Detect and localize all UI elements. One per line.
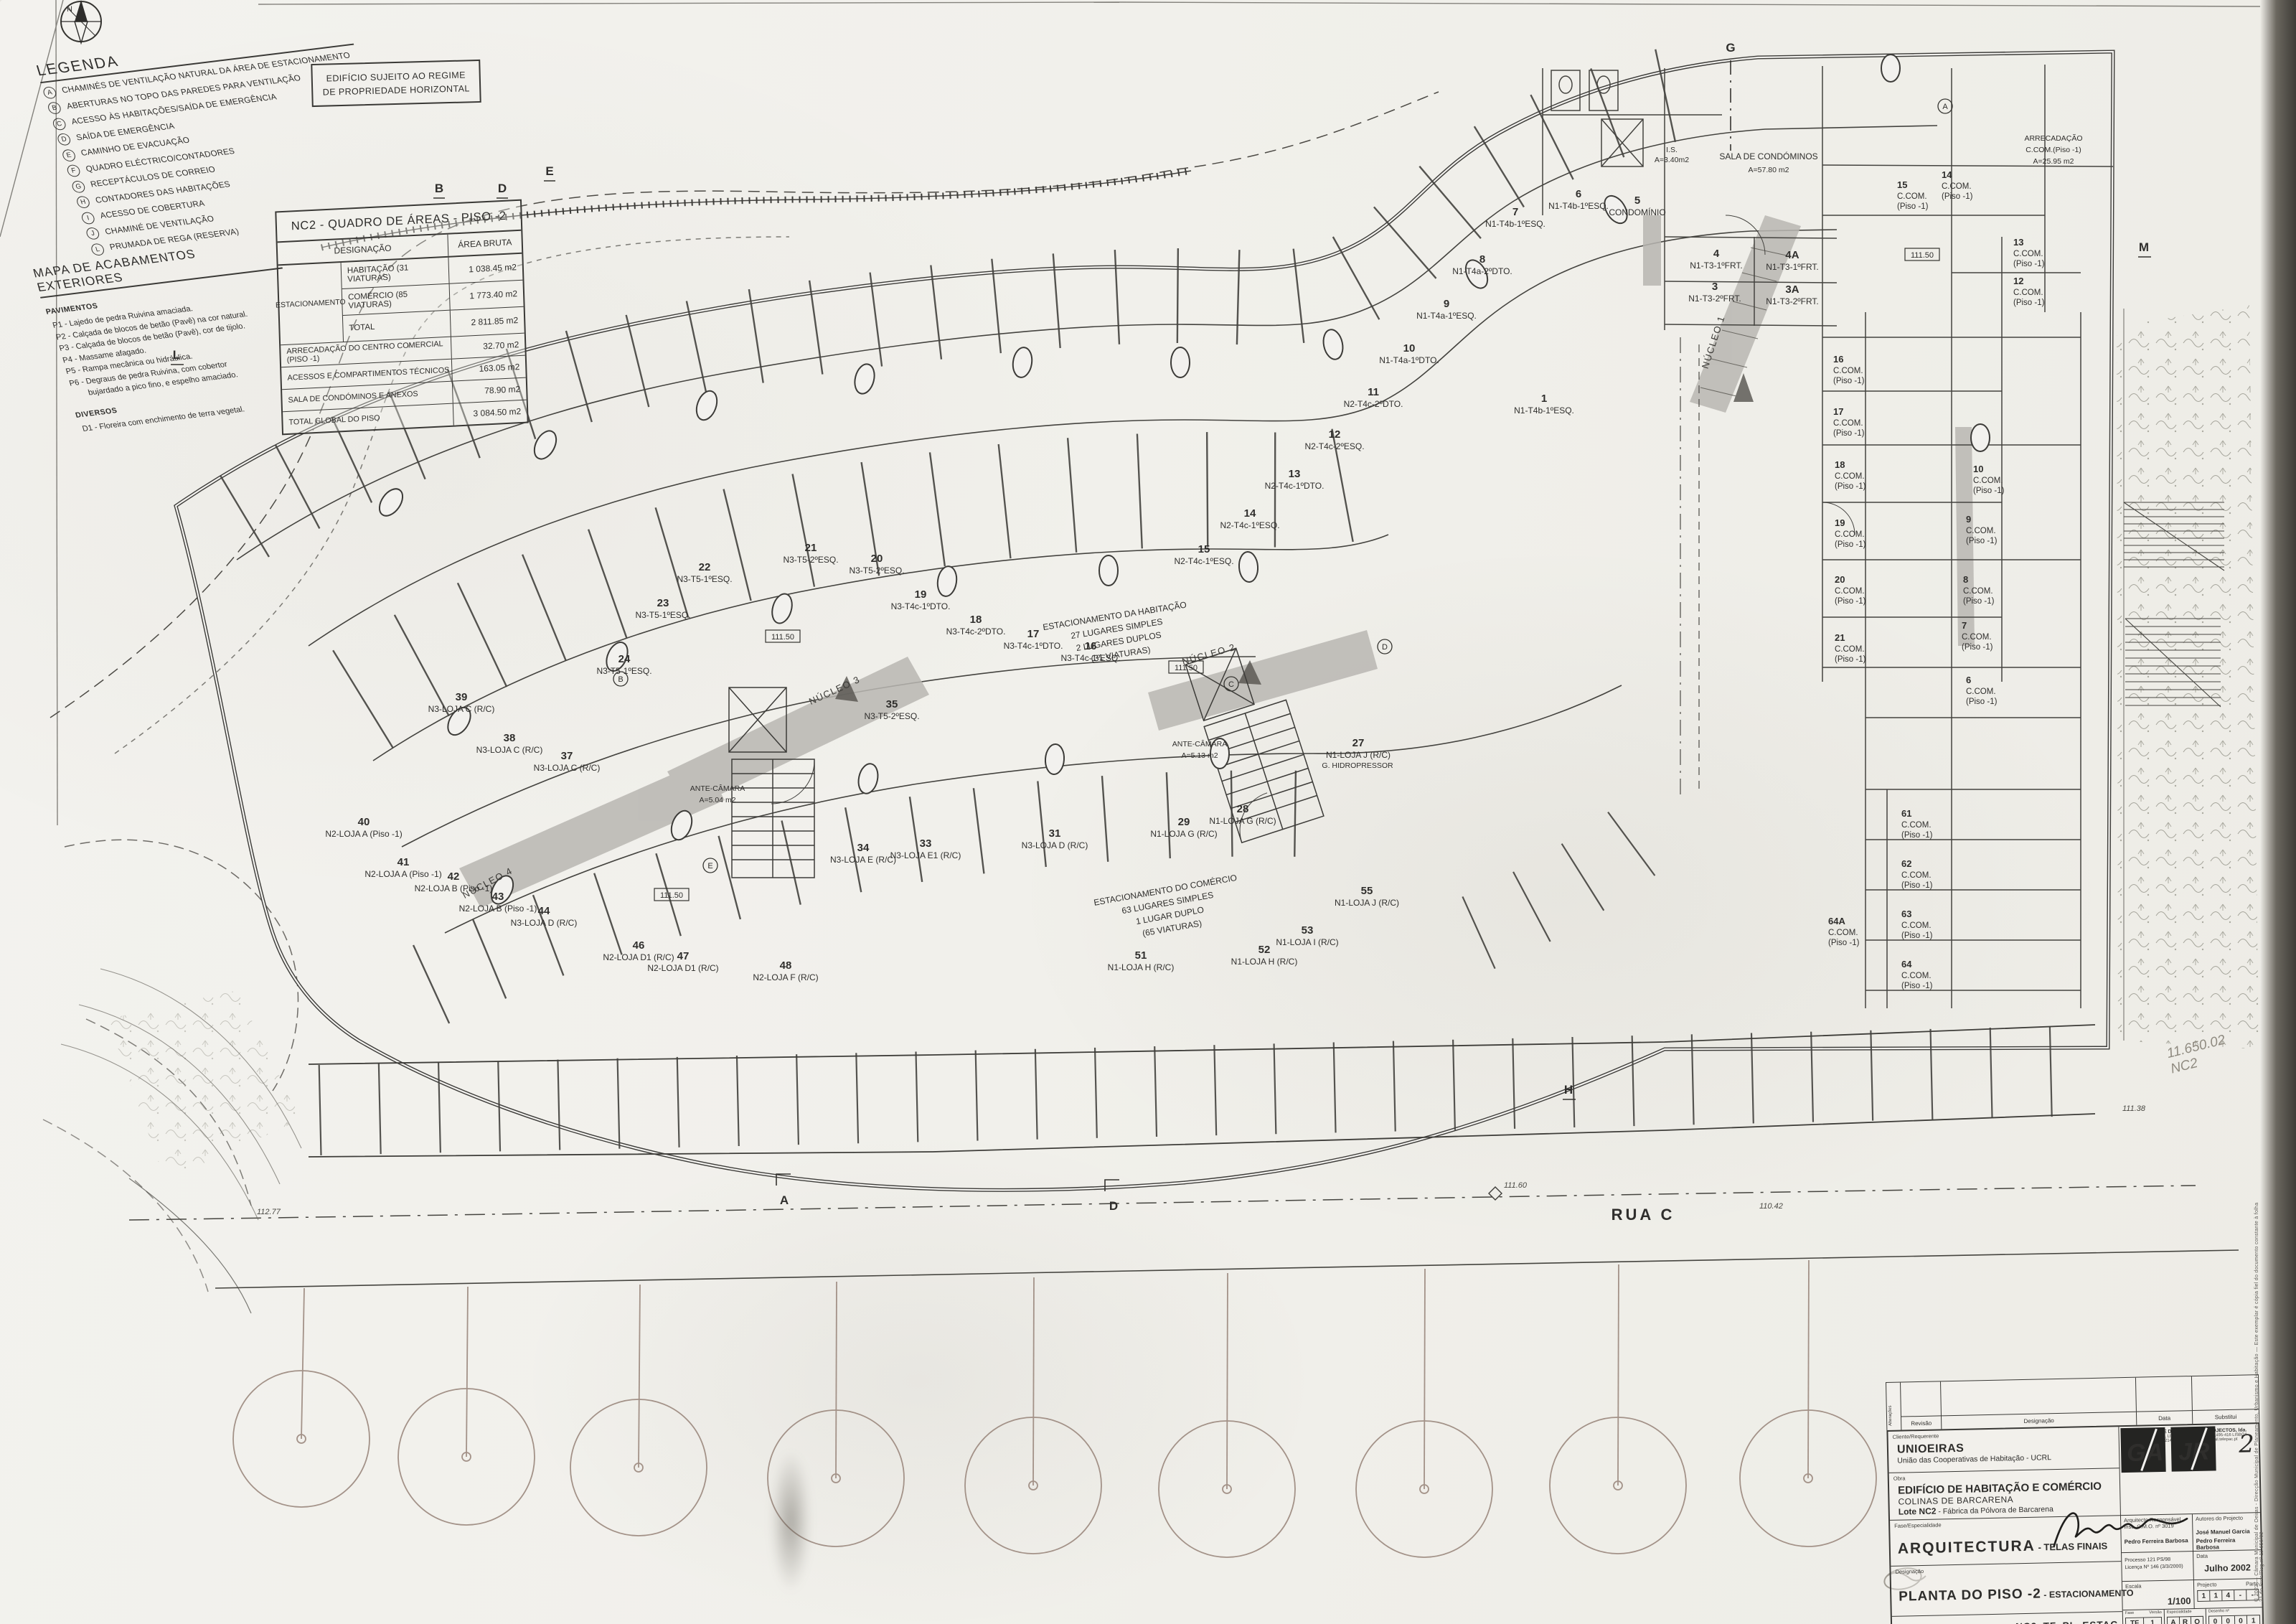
room-type: C.COM. bbox=[1966, 687, 1996, 696]
stall-label: N1-T4b-1ºESQ. bbox=[1485, 219, 1545, 229]
axis-letter-d: D bbox=[498, 182, 507, 195]
stall-label: N1-LOJA H (R/C) bbox=[1231, 957, 1298, 967]
room-floor: (Piso -1) bbox=[1833, 429, 1865, 438]
scale-project-cell: Escala 1/100 Projecto Parte 1 1 4 - bbox=[2122, 1579, 2262, 1610]
room-number: 7 bbox=[1962, 620, 1967, 631]
author-name: Pedro Ferreira Barbosa bbox=[2196, 1536, 2258, 1551]
stall-label: N1-T3-1ºFRT. bbox=[1766, 262, 1819, 272]
esp-cell: R bbox=[2180, 1617, 2192, 1624]
room-type: C.COM. bbox=[1835, 472, 1865, 481]
des-cell: 0 bbox=[2234, 1616, 2247, 1624]
stall-label: N2-T4c-2ºDTO. bbox=[1344, 399, 1403, 409]
revision-col-designacao: Designação bbox=[1941, 1378, 2137, 1430]
stall-label: N1-T4b-1ºESQ. bbox=[1514, 405, 1574, 416]
level-value: 111.50 bbox=[771, 633, 794, 642]
scan-smudge bbox=[762, 1417, 819, 1624]
room-number: 8 bbox=[1963, 574, 1968, 585]
sheet-number-handwritten: 2 bbox=[2239, 1430, 2254, 1458]
group-row-value: 2 811.85 m2 bbox=[451, 307, 524, 337]
stall-number: 24 bbox=[618, 653, 631, 665]
stall-label: CONDOMÍNIO bbox=[1609, 207, 1665, 217]
room-number: 64A bbox=[1828, 916, 1845, 926]
road-level-value: 111.60 bbox=[1504, 1181, 1528, 1190]
room-type: C.COM. bbox=[1901, 921, 1932, 930]
right-block-dashed-lines bbox=[1680, 337, 1699, 797]
axis-letter-h: H bbox=[1564, 1083, 1573, 1097]
stall-label: N3-LOJA D (R/C) bbox=[1022, 840, 1088, 850]
revision-header: Substitui bbox=[2193, 1409, 2259, 1424]
desenho-label: Desenho nº bbox=[2208, 1608, 2260, 1614]
stall-number: 55 bbox=[1361, 885, 1373, 897]
desenho-col: Desenho nº 0001 bbox=[2206, 1607, 2263, 1624]
stall-label: N1-LOJA J (R/C) bbox=[1326, 750, 1391, 760]
room-number: 6 bbox=[1966, 675, 1971, 685]
circled-letter: A bbox=[1942, 103, 1948, 111]
zone-label-comercio: ESTACIONAMENTO DO COMÉRCIO 63 LUGARES SI… bbox=[1093, 872, 1244, 946]
room-number: 64 bbox=[1901, 959, 1912, 970]
especialidade-label: Especialidade bbox=[2167, 1610, 2203, 1615]
date-label: Data bbox=[2196, 1552, 2258, 1559]
stall-label: N3-LOJA E (R/C) bbox=[830, 855, 896, 865]
revision-table: Alterações Revisão Designação Data Subst… bbox=[1886, 1374, 2259, 1430]
title-block-left: Cliente/Requerente UNIOEIRAS União das C… bbox=[1888, 1427, 2123, 1624]
stall-label: N1-T3-2ºFRT. bbox=[1688, 294, 1741, 304]
stall-number: 47 bbox=[677, 950, 690, 962]
room-type: C.COM. bbox=[1901, 821, 1932, 830]
process-date-cell: Processo 121 PS/98 Licença Nº 146 (3/3/2… bbox=[2122, 1550, 2262, 1582]
note-line: DE PROPRIEDADE HORIZONTAL bbox=[323, 83, 470, 97]
stall-number: 9 bbox=[1444, 298, 1449, 310]
title-block: Alterações Revisão Designação Data Subst… bbox=[1886, 1374, 2264, 1624]
horizontal-property-note: EDIFÍCIO SUJEITO AO REGIME DE PROPRIEDAD… bbox=[311, 60, 481, 107]
stall-label: N1-T4a-2ºDTO. bbox=[1452, 266, 1512, 276]
room-floor: (Piso -1) bbox=[1942, 192, 1973, 201]
esp-cell: Q bbox=[2191, 1617, 2203, 1624]
stall-label: N2-LOJA A (Piso -1) bbox=[325, 829, 402, 839]
room-floor: (Piso -1) bbox=[1833, 377, 1865, 385]
revision-col-alteracoes: Alterações bbox=[1886, 1383, 1901, 1430]
room-number: 9 bbox=[1966, 514, 1971, 525]
stall-label: N1-LOJA J (R/C) bbox=[1335, 898, 1399, 908]
stall-label: N1-T4b-1ºESQ. bbox=[1548, 201, 1609, 211]
room-type: C.COM. bbox=[1963, 587, 1993, 596]
hidropressor-label: G. HIDROPRESSOR bbox=[1322, 761, 1393, 770]
stall-label: N3-T4c-1ºDTO. bbox=[891, 601, 951, 611]
room-floor: (Piso -1) bbox=[1966, 537, 1998, 545]
des-cell: 1 bbox=[2247, 1615, 2259, 1624]
desenho-cells: 0001 bbox=[2208, 1615, 2260, 1624]
scale-label: Escala bbox=[2125, 1582, 2191, 1590]
stall-label: N3-T5-2ºESQ. bbox=[849, 565, 904, 576]
drawing-sheet: N bbox=[0, 0, 2296, 1624]
level-value: 111.50 bbox=[660, 891, 683, 900]
stall-number: 44 bbox=[538, 905, 550, 917]
stall-number: 8 bbox=[1479, 253, 1485, 266]
circled-letter: E bbox=[707, 862, 712, 870]
stall-number: 34 bbox=[857, 842, 870, 854]
stall-number: 51 bbox=[1135, 949, 1147, 962]
stall-number: 48 bbox=[780, 959, 792, 972]
title-block-right: GA JR 2 GAJR - GABINETE DE ESTUDOS E PRO… bbox=[2119, 1424, 2262, 1624]
storage-room-labels: 16C.COM.(Piso -1) 17C.COM.(Piso -1) 18C.… bbox=[1828, 169, 2045, 990]
stall-label: N2-LOJA F (R/C) bbox=[753, 972, 818, 982]
axis-letter-d: D bbox=[1109, 1199, 1118, 1213]
stall-label: N1-T3-1ºFRT. bbox=[1690, 261, 1743, 271]
stall-number: 17 bbox=[1027, 628, 1040, 640]
stall-label: N3-LOJA C (R/C) bbox=[534, 763, 601, 773]
group-row-value: 1 773.40 m2 bbox=[450, 281, 524, 311]
room-floor: (Piso -1) bbox=[1897, 202, 1929, 211]
stall-label: N3-T5-1ºESQ. bbox=[635, 610, 690, 620]
client-cell: Cliente/Requerente UNIOEIRAS União das C… bbox=[1888, 1427, 2119, 1473]
stall-number: 46 bbox=[633, 939, 645, 952]
areas-table-group: ESTACIONAMENTO HABITAÇÃO (31 VIATURAS) 1… bbox=[278, 254, 524, 346]
axis-letter-g: G bbox=[1726, 41, 1735, 55]
stall-number: 18 bbox=[970, 614, 982, 626]
antecamara-label: ANTE-CÂMARA bbox=[1172, 739, 1227, 748]
dim-value: 112.77 bbox=[257, 1208, 281, 1216]
revision-empty-rows bbox=[1901, 1381, 1941, 1417]
scan-edge-shadow bbox=[2260, 0, 2296, 1624]
stall-number: 10 bbox=[1403, 342, 1416, 355]
des-cell: 0 bbox=[2209, 1616, 2222, 1624]
stall-label: N3-T5-2ºESQ. bbox=[783, 555, 838, 565]
stall-number: 52 bbox=[1258, 944, 1271, 956]
group-row-value: 1 038.45 m2 bbox=[448, 254, 522, 284]
stall-label: N3-T4c-1ºESQ. bbox=[1060, 653, 1120, 663]
is-label: I.S. bbox=[1666, 146, 1678, 154]
stall-number: 14 bbox=[1244, 507, 1256, 520]
architect-name: Pedro Ferreira Barbosa bbox=[2125, 1537, 2190, 1545]
room-number: 20 bbox=[1835, 574, 1845, 585]
room-type: C.COM. bbox=[1901, 871, 1932, 880]
scale-value: 1/100 bbox=[2125, 1595, 2191, 1607]
title-block-main: Cliente/Requerente UNIOEIRAS União das C… bbox=[1886, 1422, 2264, 1624]
team-cell: Arquitecto Responsável Insc. C.M.O. nº 3… bbox=[2121, 1513, 2261, 1553]
col-area-bruta: ÁREA BRUTA bbox=[448, 231, 522, 256]
project-label: Projecto bbox=[2197, 1581, 2217, 1588]
stall-label: N1-LOJA H (R/C) bbox=[1108, 962, 1175, 972]
room-number: 14 bbox=[1942, 169, 1952, 180]
room-floor: (Piso -1) bbox=[1901, 982, 1933, 990]
note-line: EDIFÍCIO SUJEITO AO REGIME bbox=[326, 70, 466, 83]
designation-value: PLANTA DO PISO -2 bbox=[1899, 1587, 2041, 1605]
stall-number: 33 bbox=[920, 837, 932, 850]
room-type: C.COM. bbox=[1973, 477, 2003, 485]
road-rua-c: RUA C 111.60 112.77 110.42 111.38 bbox=[129, 1104, 2239, 1313]
stall-label: N2-T4c-1ºDTO. bbox=[1265, 481, 1325, 491]
room-type: C.COM. bbox=[1828, 929, 1858, 937]
especialidade-col: Especialidade ARQ bbox=[2165, 1609, 2207, 1624]
room-floor: (Piso -1) bbox=[1835, 597, 1866, 606]
antecamara-area: A=5.13 m2 bbox=[1181, 751, 1218, 760]
road-label: RUA C bbox=[1612, 1206, 1675, 1224]
room-floor: (Piso -1) bbox=[1973, 487, 2005, 495]
room-type: C.COM. bbox=[2013, 288, 2043, 297]
room-type: C.COM. bbox=[1897, 192, 1927, 201]
circled-letter: C bbox=[1228, 680, 1234, 689]
room-type: C.COM. bbox=[1835, 587, 1865, 596]
room-floor: (Piso -1) bbox=[1901, 831, 1933, 840]
room-floor: (Piso -1) bbox=[1828, 939, 1860, 947]
stall-label: N2-LOJA D1 (R/C) bbox=[603, 952, 674, 962]
project-cell: 1 bbox=[2210, 1590, 2222, 1600]
des-cell: 0 bbox=[2222, 1616, 2235, 1624]
arrecadacao-label: ARRECADAÇÃO bbox=[2024, 133, 2082, 143]
fase-cell: 1 bbox=[2144, 1618, 2161, 1624]
arrecadacao-sub: C.COM.(Piso -1) bbox=[2026, 146, 2081, 154]
stall-label: N1-LOJA G (R/C) bbox=[1150, 829, 1217, 839]
stall-number: 53 bbox=[1302, 924, 1314, 937]
stall-number: 3A bbox=[1785, 283, 1799, 296]
stall-label: N3-LOJA E1 (R/C) bbox=[890, 850, 961, 860]
versao-label: Versão bbox=[2149, 1610, 2162, 1615]
stall-label: N2-T4c-1ºESQ. bbox=[1174, 556, 1233, 566]
axis-letter-a: A bbox=[780, 1193, 789, 1207]
stall-number: 1 bbox=[1541, 393, 1547, 405]
stall-label: N1-LOJA G (R/C) bbox=[1209, 816, 1276, 826]
stall-number: 40 bbox=[358, 816, 370, 828]
stall-number: 38 bbox=[504, 732, 516, 744]
work-lot-code: Lote NC2 bbox=[1899, 1506, 1937, 1517]
stall-number: 19 bbox=[915, 588, 927, 601]
stall-number: 43 bbox=[492, 891, 504, 903]
room-number: 16 bbox=[1833, 354, 1843, 365]
room-floor: (Piso -1) bbox=[1963, 597, 1995, 606]
sala-condominos-label: SALA DE CONDÓMINOS bbox=[1719, 151, 1817, 161]
stall-number: 4 bbox=[1713, 248, 1720, 260]
exterior-finishes-map: MAPA DE ACABAMENTOS EXTERIORES PAVIMENTO… bbox=[32, 238, 322, 436]
gajr-logo-icon: GA JR bbox=[2119, 1424, 2227, 1474]
designation-cell: Designação PLANTA DO PISO -2 - ESTACIONA… bbox=[1891, 1562, 2122, 1617]
work-cell: Obra EDIFÍCIO DE HABITAÇÃO E COMÉRCIO CO… bbox=[1889, 1468, 2120, 1521]
road-level-marker: 111.60 bbox=[1489, 1181, 1528, 1200]
stall-number: 3 bbox=[1712, 281, 1718, 293]
stall-label: N3-LOJA C (R/C) bbox=[428, 704, 495, 714]
stall-number: 16 bbox=[1085, 640, 1097, 652]
stall-label: N3-T4c-1ºDTO. bbox=[1004, 641, 1063, 651]
room-number: 10 bbox=[1973, 464, 1983, 474]
stall-label: N1-LOJA I (R/C) bbox=[1276, 937, 1338, 947]
dim-value: 110.42 bbox=[1759, 1202, 1783, 1211]
room-floor: (Piso -1) bbox=[1901, 881, 1933, 890]
street-parking-strip bbox=[309, 1025, 2095, 1157]
stall-number: 28 bbox=[1237, 803, 1249, 815]
room-type: C.COM. bbox=[2013, 250, 2043, 258]
room-floor: (Piso -1) bbox=[1835, 655, 1866, 664]
stall-number: 20 bbox=[871, 553, 883, 565]
room-number: 13 bbox=[2013, 237, 2023, 248]
fase-cells: TF1 bbox=[2125, 1617, 2162, 1624]
stall-number: 27 bbox=[1352, 737, 1365, 749]
logo-cell: GA JR 2 GAJR - GABINETE DE ESTUDOS E PRO… bbox=[2119, 1424, 2260, 1516]
stall-number: 21 bbox=[805, 542, 817, 554]
room-number: 62 bbox=[1901, 858, 1911, 869]
arrecadacao-area: A=25.95 m2 bbox=[2033, 157, 2074, 166]
structural-columns bbox=[375, 55, 1990, 908]
room-number: 18 bbox=[1835, 459, 1845, 470]
dim-value: 111.38 bbox=[2122, 1104, 2146, 1113]
room-floor: (Piso -1) bbox=[1962, 643, 1993, 652]
room-floor: (Piso -1) bbox=[1901, 931, 1933, 940]
antecamara-area: A=5.04 m2 bbox=[699, 796, 735, 804]
room-number: 15 bbox=[1897, 179, 1907, 190]
revision-col-data: Data bbox=[2136, 1376, 2193, 1425]
row-value: 163.05 m2 bbox=[452, 356, 526, 381]
stall-label: N1-T3-2ºFRT. bbox=[1766, 296, 1819, 306]
room-floor: (Piso -1) bbox=[2013, 299, 2045, 307]
stall-label: N3-T5-1ºESQ. bbox=[677, 574, 732, 584]
revision-col-revisao: Revisão bbox=[1901, 1381, 1942, 1430]
stall-label: N1-T4a-1ºDTO. bbox=[1379, 355, 1439, 365]
revision-alt-label: Alterações bbox=[1888, 1405, 1893, 1425]
phase-value: ARQUITECTURA bbox=[1898, 1538, 2036, 1557]
stall-number: 42 bbox=[448, 870, 460, 883]
axis-letter-m: M bbox=[2139, 240, 2149, 254]
fase-cell: TF bbox=[2126, 1618, 2144, 1624]
level-value: 111.50 bbox=[1911, 251, 1934, 260]
stall-label: N3-T5-2ºESQ. bbox=[864, 711, 919, 721]
stall-number: 37 bbox=[561, 750, 573, 762]
scan-crease bbox=[0, 0, 244, 244]
room-number: 61 bbox=[1901, 808, 1911, 819]
phase-cell: Fase/Especialidade ARQUITECTURA - TELAS … bbox=[1890, 1516, 2121, 1567]
axis-letter-b: B bbox=[435, 182, 443, 195]
legend-key-icon: L bbox=[90, 243, 105, 256]
esp-cell: A bbox=[2168, 1617, 2180, 1624]
revision-empty-rows bbox=[2192, 1375, 2259, 1411]
architect-col: Arquitecto Responsável Insc. C.M.O. nº 3… bbox=[2121, 1514, 2193, 1554]
stall-label: N3-T5-1ºESQ. bbox=[596, 666, 651, 676]
process-col: Processo 121 PS/98 Licença Nº 146 (3/3/2… bbox=[2122, 1552, 2194, 1582]
stall-label: N2-T4c-1ºESQ. bbox=[1220, 520, 1279, 530]
circled-letter: D bbox=[1382, 643, 1388, 652]
authors-col: Autores do Projecto José Manuel Garcia P… bbox=[2193, 1513, 2261, 1552]
stall-number: 41 bbox=[397, 856, 410, 868]
antecamara-label: ANTE-CÂMARA bbox=[690, 784, 745, 793]
revision-empty-rows bbox=[1941, 1378, 2136, 1417]
date-value: Julho 2002 bbox=[2196, 1562, 2258, 1574]
authors-label: Autores do Projecto bbox=[2196, 1514, 2257, 1522]
project-cell: 1 bbox=[2198, 1591, 2210, 1601]
revision-header: Data bbox=[2137, 1411, 2192, 1425]
stall-number: 22 bbox=[699, 561, 711, 573]
circled-letter: B bbox=[618, 675, 623, 684]
stall-number: 35 bbox=[886, 698, 898, 710]
work-lot-detail: - Fábrica da Pólvora de Barcarena bbox=[1936, 1505, 2053, 1516]
stall-label: N2-LOJA A (Piso -1) bbox=[364, 869, 441, 879]
fase-label: Fase bbox=[2125, 1611, 2135, 1615]
sala-condominos-area: A=57.80 m2 bbox=[1749, 166, 1789, 174]
revision-empty-rows bbox=[2136, 1376, 2192, 1412]
stall-number: 6 bbox=[1576, 188, 1581, 200]
stall-number: 12 bbox=[1329, 428, 1341, 441]
room-floor: (Piso -1) bbox=[1835, 482, 1866, 491]
stall-number: 39 bbox=[456, 691, 468, 703]
stall-number: 15 bbox=[1198, 543, 1210, 555]
stall-number: 13 bbox=[1289, 468, 1301, 480]
room-type: C.COM. bbox=[1942, 182, 1972, 191]
stall-label: N2-LOJA B (Piso -1) bbox=[415, 883, 493, 893]
stall-number: 4A bbox=[1785, 249, 1799, 261]
designation-label: Designação bbox=[1895, 1564, 2117, 1574]
room-type: C.COM. bbox=[1835, 645, 1865, 654]
room-floor: (Piso -1) bbox=[1966, 698, 1998, 706]
registo-value: NC2_TF_PL_ESTAC bbox=[2015, 1619, 2118, 1624]
scale-col: Escala 1/100 bbox=[2122, 1580, 2195, 1610]
stall-number: 31 bbox=[1049, 827, 1061, 840]
revision-col-substitui: Substitui bbox=[2192, 1375, 2259, 1424]
stall-label: N3-T4c-2ºDTO. bbox=[946, 626, 1006, 637]
stall-label: N2-LOJA B (Piso -1) bbox=[459, 903, 537, 914]
room-number: 19 bbox=[1835, 517, 1845, 528]
stall-label: N1-T4a-1ºESQ. bbox=[1416, 311, 1477, 321]
row-value: 3 084.50 m2 bbox=[453, 400, 527, 426]
project-cell: 4 bbox=[2222, 1590, 2234, 1600]
row-value: 78.90 m2 bbox=[453, 378, 527, 403]
stall-label: N3-LOJA D (R/C) bbox=[511, 918, 578, 928]
stall-label: N2-LOJA D1 (R/C) bbox=[647, 963, 718, 973]
room-floor: (Piso -1) bbox=[1835, 540, 1866, 549]
room-type: C.COM. bbox=[1835, 530, 1865, 539]
license-number: Licença Nº 146 (3/3/2000) bbox=[2125, 1563, 2190, 1572]
row-value: 32.70 m2 bbox=[451, 334, 525, 359]
project-col: Projecto Parte 1 1 4 - - bbox=[2194, 1579, 2262, 1609]
phase-suffix: - TELAS FINAIS bbox=[2036, 1541, 2108, 1553]
project-cell: - bbox=[2234, 1590, 2246, 1600]
is-area: A=3.40m2 bbox=[1655, 156, 1689, 164]
room-number: 21 bbox=[1835, 632, 1845, 643]
especialidade-cells: ARQ bbox=[2167, 1616, 2203, 1624]
room-number: 12 bbox=[2013, 276, 2023, 286]
stall-label: N3-LOJA C (R/C) bbox=[476, 745, 543, 755]
room-number: 17 bbox=[1833, 406, 1843, 417]
room-type: C.COM. bbox=[1901, 972, 1932, 980]
project-number-cells: 1 1 4 - - bbox=[2197, 1589, 2259, 1602]
fase-versao-col: FaseVersão TF1 bbox=[2123, 1610, 2165, 1624]
date-col: Data Julho 2002 bbox=[2193, 1550, 2262, 1580]
author-name: José Manuel Garcia bbox=[2196, 1528, 2257, 1536]
stall-number: 23 bbox=[657, 597, 669, 609]
core-label-nucleo2: NÚCLEO 2 bbox=[1181, 642, 1237, 667]
stall-number: 7 bbox=[1512, 206, 1518, 218]
room-type: C.COM. bbox=[1962, 633, 1992, 642]
room-type: C.COM. bbox=[1833, 367, 1863, 375]
designation-suffix: - ESTACIONAMENTO bbox=[2041, 1588, 2134, 1600]
room-type: C.COM. bbox=[1833, 419, 1863, 428]
architect-registration: Insc. C.M.O. nº 3019 bbox=[2124, 1522, 2189, 1530]
right-block-grid bbox=[1543, 65, 2113, 1008]
room-floor: (Piso -1) bbox=[2013, 260, 2045, 268]
stall-number: 11 bbox=[1368, 386, 1379, 398]
codes-cell: FaseVersão TF1 Especialidade ARQ Desenho… bbox=[2123, 1607, 2263, 1624]
phase-label: Fase/Especialidade bbox=[1894, 1518, 2116, 1529]
room-type: C.COM. bbox=[1966, 527, 1996, 535]
stall-number: 5 bbox=[1634, 194, 1640, 207]
axis-letter-e: E bbox=[545, 164, 553, 178]
stall-number: 29 bbox=[1178, 816, 1190, 828]
client-label: Cliente/Requerente bbox=[1893, 1429, 2114, 1440]
room-number: 63 bbox=[1901, 909, 1911, 919]
revision-header: Revisão bbox=[1901, 1416, 1941, 1430]
stall-label: N2-T4c-2ºESQ. bbox=[1304, 441, 1364, 451]
street-trees bbox=[233, 1260, 1876, 1557]
